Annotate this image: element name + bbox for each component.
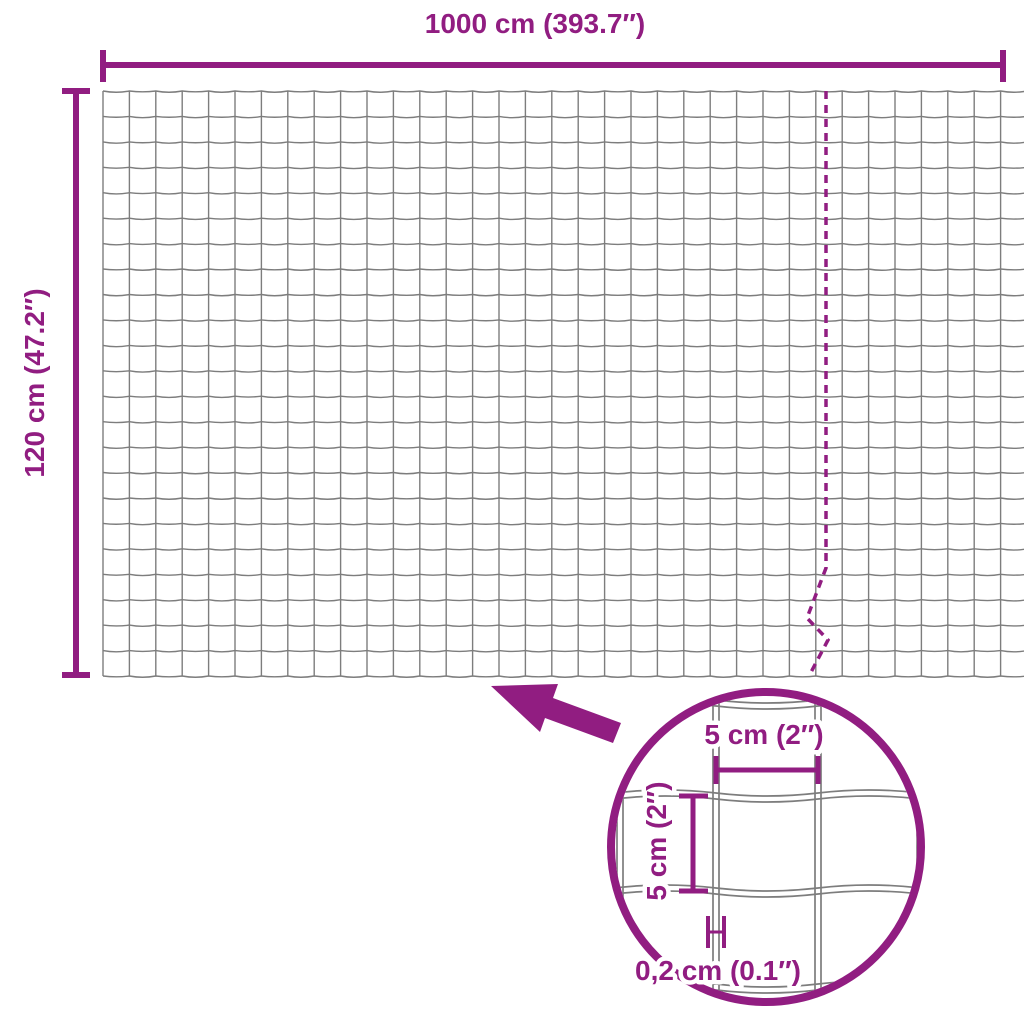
width-dimension-label: 1000 cm (393.7″) (425, 8, 645, 39)
wire-thickness-label: 0,2 cm (0.1″) (635, 955, 801, 986)
height-dimension: 120 cm (47.2″) (19, 91, 90, 675)
mesh-vertical-wires (103, 91, 1024, 676)
panel-cut-line (807, 91, 828, 676)
mesh-panel (103, 91, 1024, 677)
detail-pointer-arrow-icon (491, 684, 621, 743)
detail-circle: 5 cm (2″) 5 cm (2″) 0,2 cm (0.1″) (512, 692, 1022, 1002)
height-dimension-label: 120 cm (47.2″) (19, 288, 50, 477)
product-dimension-diagram: 1000 cm (393.7″) 120 cm (47.2″) (0, 0, 1024, 1024)
mesh-height-label: 5 cm (2″) (641, 781, 672, 900)
diagram-canvas: 1000 cm (393.7″) 120 cm (47.2″) (0, 0, 1024, 1024)
width-dimension: 1000 cm (393.7″) (103, 8, 1003, 82)
mesh-width-label: 5 cm (2″) (704, 719, 823, 750)
mesh-horizontal-wires (103, 91, 1024, 677)
